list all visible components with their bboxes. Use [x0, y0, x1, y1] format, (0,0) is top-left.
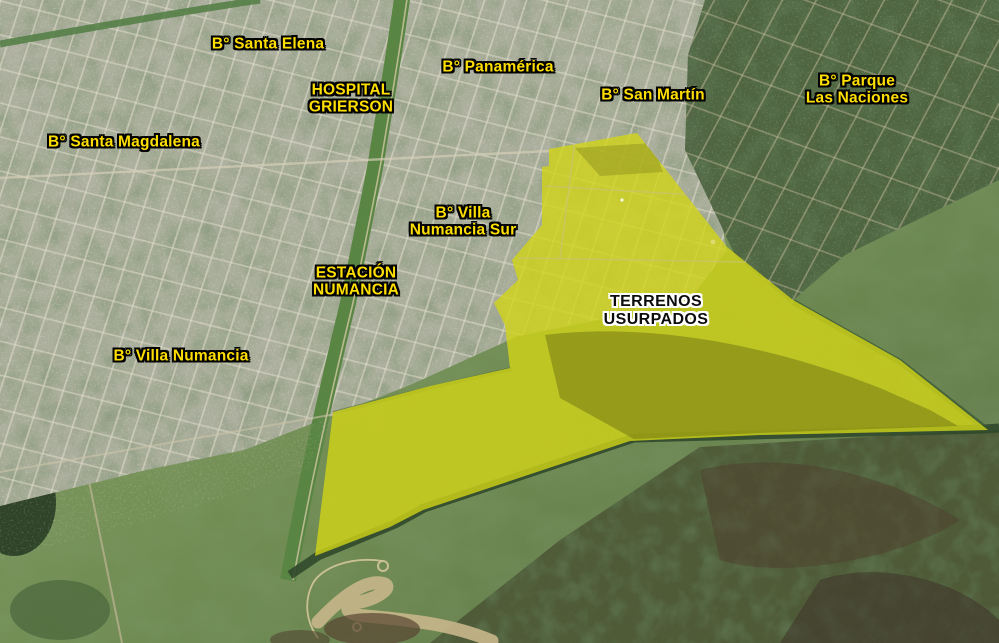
label-barrio-villa-numancia-sur: B° Villa Numancia Sur	[410, 205, 517, 240]
label-estacion-numancia: ESTACIÓN NUMANCIA	[313, 265, 399, 300]
label-barrio-villa-numancia: B° Villa Numancia	[113, 347, 248, 364]
label-barrio-santa-elena: B° Santa Elena	[212, 35, 324, 52]
label-barrio-san-martin: B° San Martín	[601, 86, 705, 103]
label-hospital-grierson: HOSPITAL GRIERSON	[309, 82, 393, 117]
annotated-satellite-map: B° Santa Elena HOSPITAL GRIERSON B° Pana…	[0, 0, 999, 643]
label-barrio-santa-magdalena: B° Santa Magdalena	[48, 133, 200, 150]
label-terrenos-usurpados: TERRENOS USURPADOS	[604, 293, 709, 329]
label-barrio-panamerica: B° Panamérica	[442, 58, 553, 75]
label-barrio-parque-las-naciones: B° Parque Las Naciones	[806, 73, 908, 108]
